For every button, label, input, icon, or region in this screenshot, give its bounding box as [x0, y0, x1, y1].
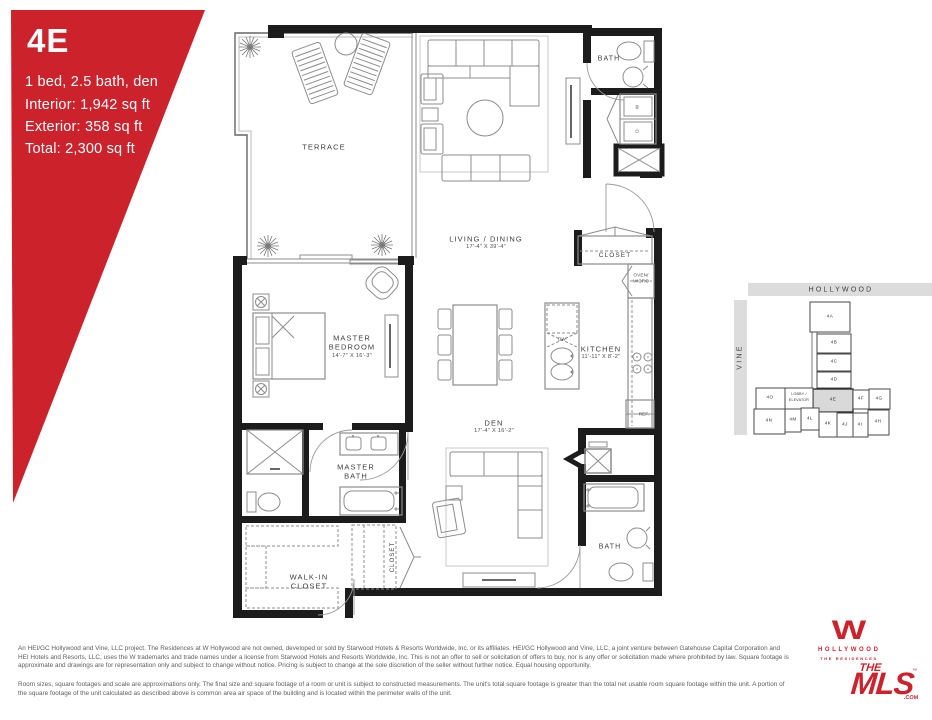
- bedroom-tv-console: [385, 315, 398, 377]
- terrace-label: TERRACE: [302, 143, 346, 151]
- terrace-loungers: [291, 33, 390, 105]
- upper-bath-label: BATH: [598, 56, 621, 63]
- den-chair: [432, 498, 466, 538]
- map-label-4b: 4B: [831, 341, 837, 346]
- bathtub: [584, 484, 644, 511]
- washer-label: W: [636, 105, 641, 110]
- lower-bath-fixtures: [584, 442, 653, 581]
- unit-exterior-sqft: Exterior: 358 sq ft: [25, 119, 142, 135]
- toilet: [617, 42, 641, 60]
- utility-box: [585, 442, 611, 473]
- map-label-4c: 4C: [831, 360, 838, 365]
- coffee-table: [467, 100, 503, 136]
- map-lobby-label-2: ELEVATOR: [789, 399, 809, 403]
- washer-dryer-stack: [607, 94, 656, 144]
- unit-interior-sqft: Interior: 1,942 sq ft: [25, 97, 150, 113]
- hall-closet-label: CLOSET: [390, 542, 396, 573]
- dishwasher-label: DW: [558, 338, 566, 343]
- dining-set: [438, 305, 512, 385]
- nightstand: [253, 294, 269, 310]
- living-room-furniture: [420, 36, 580, 181]
- unit-total-sqft: Total: 2,300 sq ft: [25, 141, 135, 157]
- den-furniture: [432, 448, 548, 587]
- map-label-4i: 4I: [858, 423, 863, 428]
- walk-in-closet-label-1: WALK-IN: [290, 573, 329, 581]
- floor-plan-sheet: 4E 1 bed, 2.5 bath, den Interior: 1,942 …: [0, 0, 932, 720]
- disclaimer-paragraph-1: An HEI/GC Hollywood and Vine, LLC projec…: [18, 645, 792, 671]
- master-bedroom-furniture: [253, 263, 402, 397]
- walk-in-closet-shelving: [246, 526, 338, 608]
- cooktop-burners: [633, 353, 652, 373]
- shower: [247, 430, 303, 474]
- upper-bath-fixtures: [617, 41, 654, 88]
- mls-logo-tm: ™: [912, 668, 918, 674]
- lower-bath-label: BATH: [599, 544, 622, 551]
- toilet: [247, 492, 280, 512]
- hollywood-street-label: HOLLYWOOD: [809, 287, 874, 294]
- map-lobby-label-1: LOBBY /: [791, 393, 806, 397]
- refrigerator-label: REF.: [639, 413, 650, 418]
- unit-number: 4E: [27, 22, 69, 60]
- walls: [233, 25, 662, 618]
- map-label-4d: 4D: [831, 378, 838, 383]
- bedroom-chair: [362, 263, 402, 303]
- kitchen-island: [545, 303, 579, 389]
- entry-closet-label: CLOSET: [599, 253, 632, 260]
- map-label-4h: 4H: [875, 420, 882, 425]
- map-label-4m: 4M: [789, 418, 796, 423]
- walk-in-closet-label-2: CLOSET: [291, 582, 328, 590]
- terrace-table: [335, 33, 357, 55]
- w-logo-letter: W: [807, 617, 891, 644]
- map-label-4o: 4O: [767, 396, 774, 401]
- den-label: DEN: [484, 419, 503, 427]
- nightstand: [253, 381, 269, 397]
- sink: [623, 67, 643, 87]
- tv-console: [566, 78, 580, 144]
- sink: [627, 527, 650, 549]
- master-bath-label-1: MASTER: [337, 463, 375, 471]
- bed: [253, 313, 325, 379]
- w-hollywood-logo: W HOLLYWOOD THE RESIDENCES: [818, 617, 880, 661]
- double-vanity: [340, 433, 398, 455]
- the-mls-logo: THE MLS .COM ™: [849, 661, 932, 707]
- map-label-4l: 4L: [807, 417, 813, 422]
- bathtub: [340, 487, 402, 515]
- w-hollywood-wordmark: HOLLYWOOD: [818, 647, 880, 653]
- master-bath-fixtures: [247, 430, 402, 515]
- vine-street-label: VINE: [737, 344, 744, 369]
- mls-logo-com: .COM: [904, 695, 919, 701]
- dining-table: [453, 305, 497, 385]
- floor-plan: [233, 25, 662, 618]
- map-label-4k: 4K: [825, 422, 831, 427]
- map-label-4g: 4G: [876, 397, 883, 402]
- shaft-box: [616, 146, 662, 174]
- dryer-label: D: [636, 129, 641, 133]
- map-label-4a: 4A: [827, 315, 833, 320]
- disclaimer-paragraph-2: Room sizes, square footages and scale ar…: [18, 681, 792, 698]
- kitchen-dims: 11'-11" X 8'-2": [581, 355, 620, 361]
- master-bath-label-2: BATH: [344, 472, 368, 480]
- den-dims: 17'-4" X 16'-2": [474, 429, 514, 435]
- map-label-4e: 4E: [830, 398, 836, 403]
- living-dining-dims: 17'-4" X 39'-4": [466, 245, 506, 251]
- master-bedroom-dims: 14'-7" X 16'-3": [332, 354, 372, 360]
- toilet: [609, 563, 653, 581]
- oven-micro-label-1: OVEN/: [633, 274, 648, 279]
- hall-closet: [352, 525, 421, 589]
- oven-micro-label-2: MICRO: [633, 280, 649, 285]
- map-label-4n: 4N: [766, 419, 773, 424]
- unit-config: 1 bed, 2.5 bath, den: [25, 74, 158, 90]
- map-label-4f: 4F: [858, 397, 864, 402]
- living-dining-label: LIVING / DINING: [449, 235, 523, 243]
- master-bedroom-label-1: MASTER: [333, 334, 371, 342]
- map-label-4j: 4J: [842, 423, 848, 428]
- kitchen-label: KITCHEN: [581, 345, 622, 353]
- master-bedroom-label-2: BEDROOM: [329, 343, 375, 351]
